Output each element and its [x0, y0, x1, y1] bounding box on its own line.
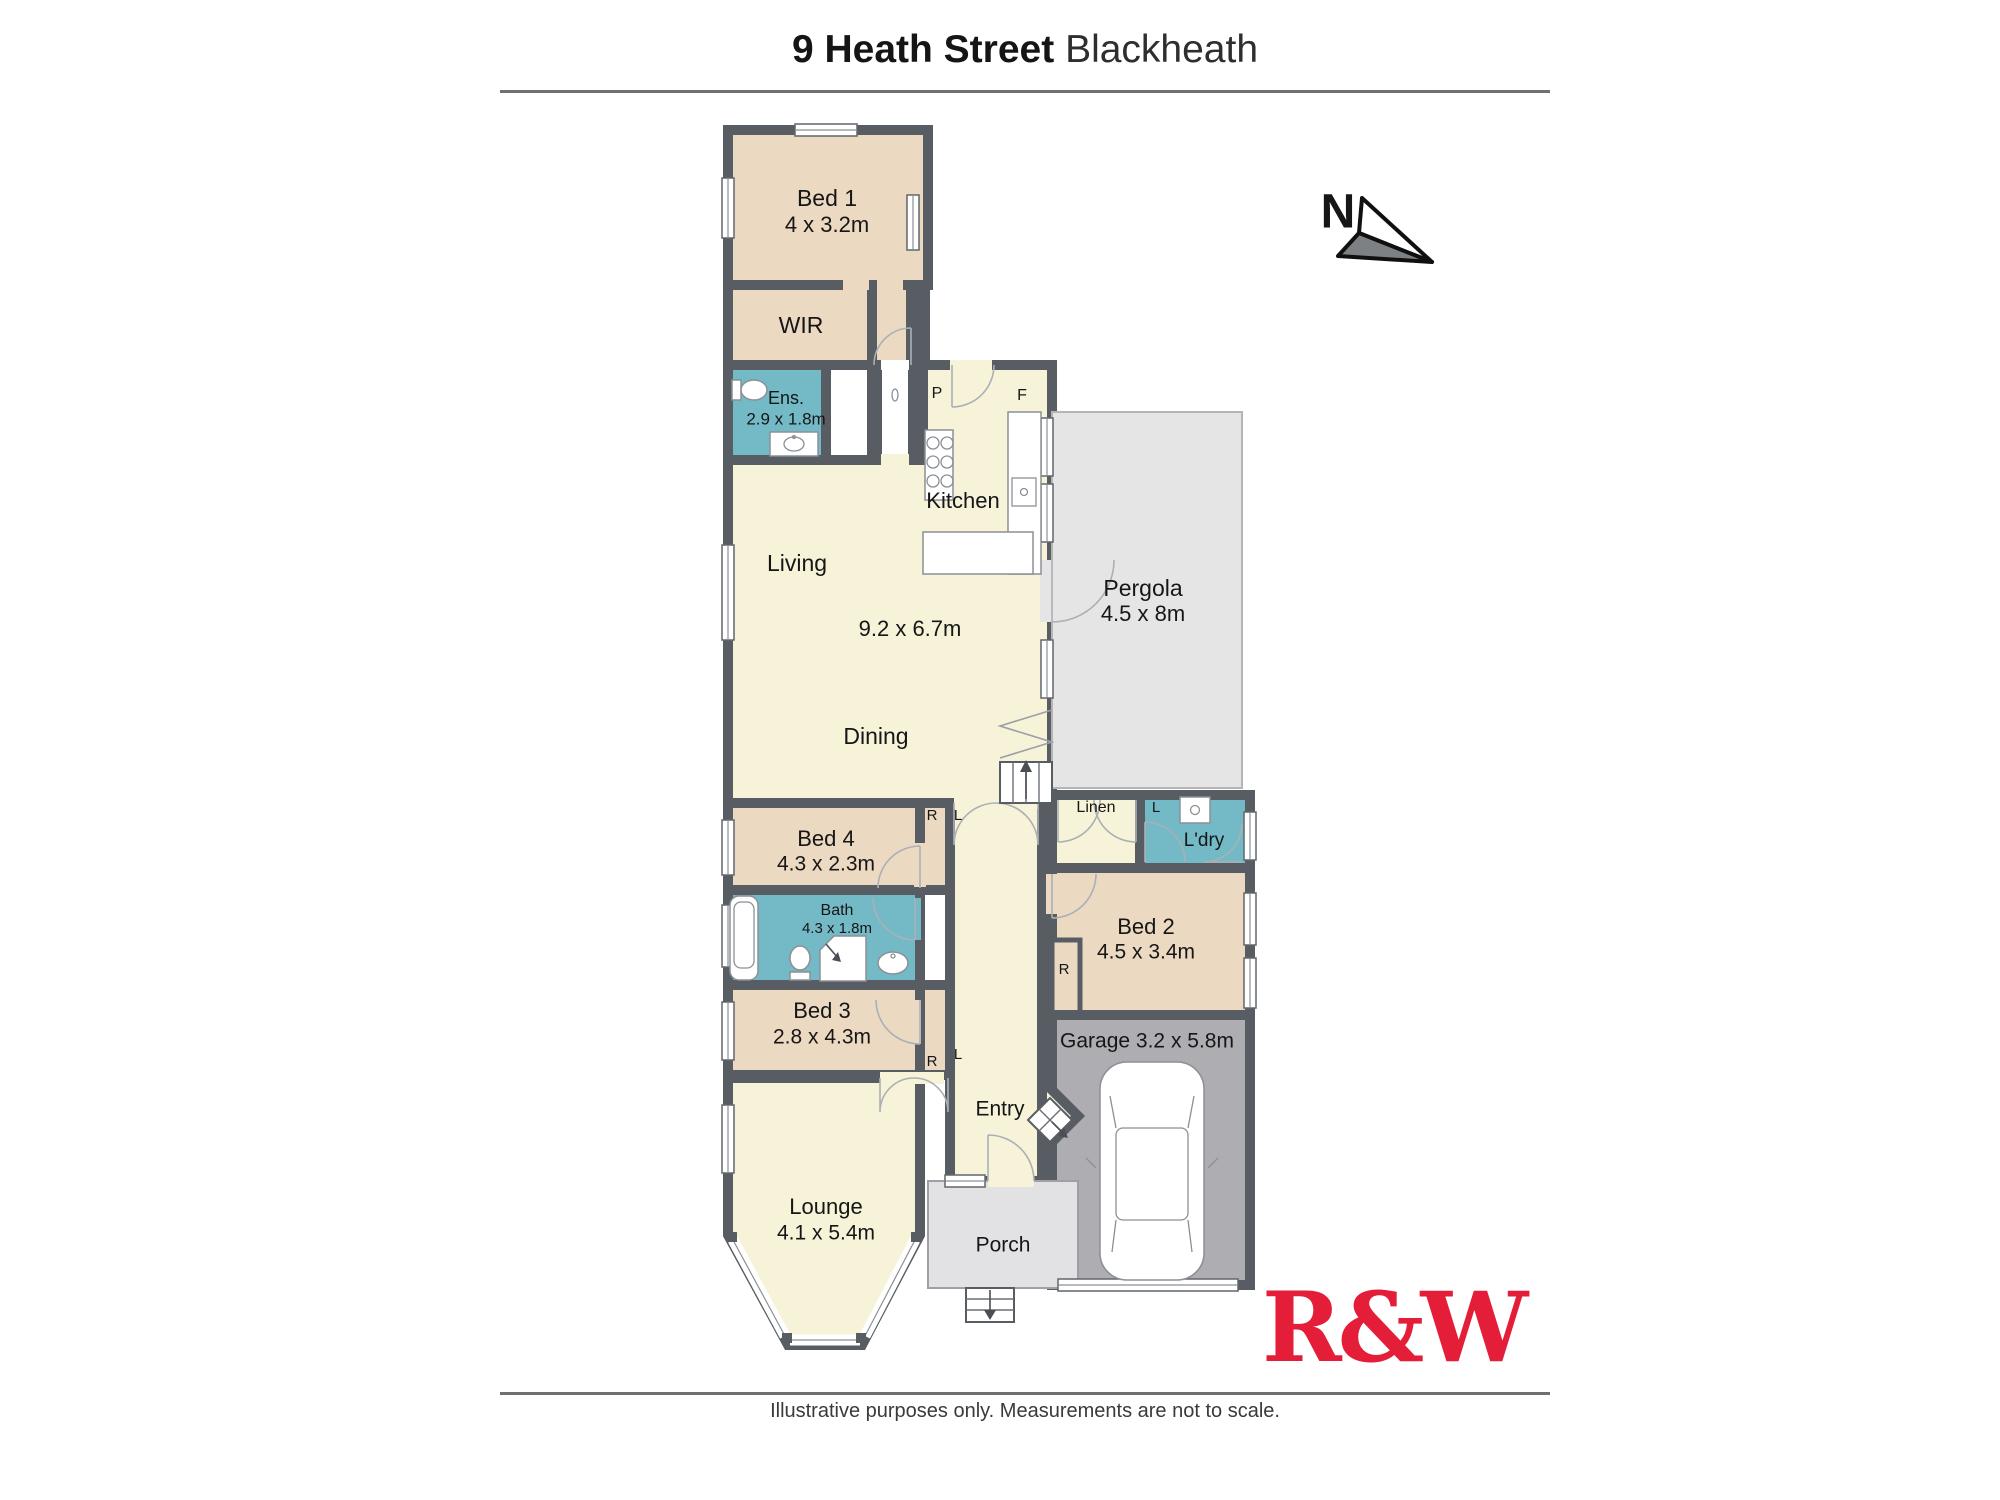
agency-logo: R&W [1262, 1280, 1524, 1376]
basin-icon [878, 952, 908, 974]
room-ens-shower [826, 365, 872, 460]
label-bath-dims: 4.3 x 1.8m [802, 920, 872, 937]
label-living: Living [767, 550, 827, 576]
north-arrow-icon: N [1321, 186, 1432, 262]
label-linen: Linen [1076, 799, 1115, 816]
label-bed4-dims: 4.3 x 2.3m [777, 853, 875, 876]
label-entry: Entry [975, 1098, 1025, 1121]
label-robe-bed2: R [1059, 961, 1070, 978]
label-garage: Garage 3.2 x 5.8m [1060, 1030, 1234, 1053]
vanity-icon [770, 432, 818, 456]
label-bed2: Bed 2 [1117, 914, 1175, 939]
bathtub-icon [730, 896, 758, 980]
label-ens: Ens. [768, 388, 804, 408]
label-bed1: Bed 1 [797, 185, 857, 211]
label-pantry: P [932, 385, 943, 402]
label-laundry: L'dry [1184, 830, 1225, 851]
label-living-dims: 9.2 x 6.7m [859, 616, 962, 641]
room-hall [950, 803, 1042, 1181]
label-bed2-dims: 4.5 x 3.4m [1097, 941, 1195, 964]
car-icon [1086, 1062, 1218, 1280]
label-kitchen: Kitchen [926, 488, 999, 513]
laundry-tub-icon [1180, 797, 1210, 823]
north-label: N [1321, 186, 1356, 239]
label-porch: Porch [976, 1234, 1031, 1257]
floor-plan-canvas: N [0, 0, 2000, 1500]
label-fridge: F [1017, 387, 1027, 404]
wall-patch [906, 283, 930, 370]
label-robe-bed3: R [927, 1053, 938, 1070]
label-bath: Bath [821, 902, 854, 919]
room-ens-passage [877, 365, 913, 460]
shower-icon [820, 936, 866, 981]
label-linen-hall2: L [954, 1046, 962, 1063]
label-bed3: Bed 3 [793, 998, 851, 1023]
footer-divider [500, 1392, 1550, 1395]
label-ens-dims: 2.9 x 1.8m [746, 409, 825, 428]
disclaimer-text: Illustrative purposes only. Measurements… [500, 1400, 1550, 1423]
label-pergola-dims: 4.5 x 8m [1101, 601, 1185, 626]
label-dining: Dining [843, 723, 908, 749]
label-lounge: Lounge [789, 1194, 862, 1219]
garage-door [1058, 1279, 1238, 1291]
label-pergola: Pergola [1103, 575, 1182, 601]
label-linen-cupboard: L [1152, 799, 1160, 816]
porch-steps-icon [966, 1288, 1014, 1322]
label-wir: WIR [779, 312, 824, 338]
label-bed3-dims: 2.8 x 4.3m [773, 1026, 871, 1049]
label-bed1-dims: 4 x 3.2m [785, 212, 869, 237]
toilet-icon [790, 946, 810, 980]
floorplan-page: 9 Heath Street Blackheath N [0, 0, 2000, 1500]
label-robe-bed4: R [927, 807, 938, 824]
label-bed4: Bed 4 [797, 826, 855, 851]
label-lounge-dims: 4.1 x 5.4m [777, 1222, 875, 1245]
label-linen-hall: L [954, 807, 962, 824]
toilet-icon [732, 380, 767, 400]
